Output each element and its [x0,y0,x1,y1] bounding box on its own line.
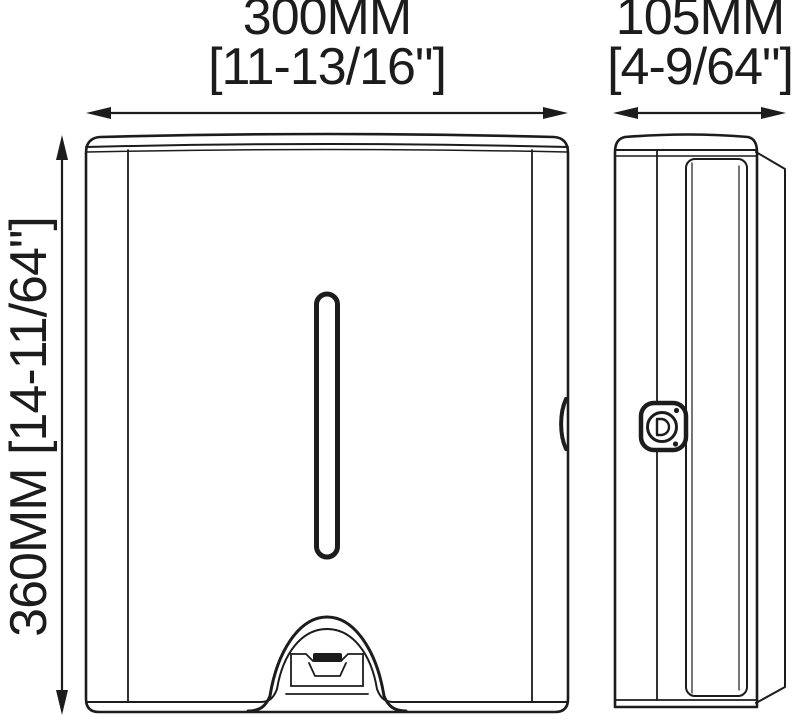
front-view [86,134,568,712]
width-dimension-arrow [86,107,568,119]
arrowhead-left-icon [86,107,111,119]
side-door-panel [686,159,747,696]
dispense-arch-inner [261,629,393,702]
key-lock [641,403,686,450]
front-cap-line-2 [87,150,567,153]
lock-cylinder [648,413,677,442]
arrowhead-down-icon [56,690,68,715]
side-view [615,135,785,708]
back-plate [756,152,785,703]
front-lock-bump [561,399,566,449]
dispenser-line-drawing [0,0,800,721]
paper-level-window [317,294,338,557]
towel-exit-mechanism [286,653,368,694]
towel-slot-icon [313,653,342,662]
height-dimension-arrow [56,135,68,715]
lock-pin-top-icon [674,408,679,413]
arrowhead-right-icon [543,107,568,119]
depth-dimension-arrow [613,107,786,119]
arrowhead-right-icon [761,107,786,119]
arrowhead-left-icon [613,107,638,119]
dimension-drawing-canvas: 300MM [11-13/16"] 105MM [4-9/64"] 360MM … [0,0,800,721]
lock-pin-bottom-icon [673,441,678,446]
front-cap-line-1 [86,144,568,147]
arrowhead-up-icon [56,135,68,160]
